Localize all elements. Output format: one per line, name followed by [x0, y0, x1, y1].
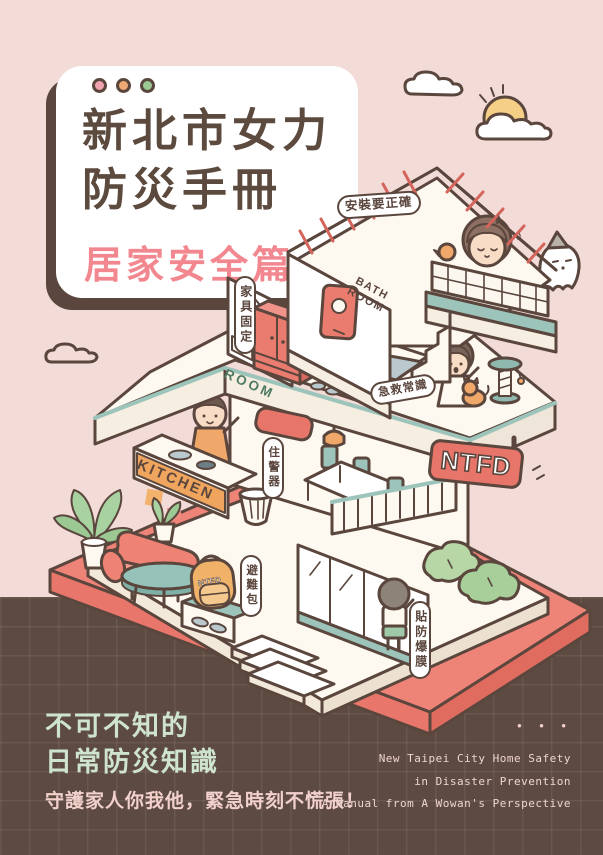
- poster: 新北市女力 防災手冊 居家安全篇: [0, 0, 603, 855]
- footer-english-line2: in Disaster Prevention: [322, 771, 571, 794]
- footer-english-line1: New Taipei City Home Safety: [322, 748, 571, 771]
- footer-headline-line2: 日常防災知識: [45, 744, 219, 780]
- label-go-bag: 避難包: [240, 555, 262, 617]
- footer-english-title: New Taipei City Home Safety in Disaster …: [322, 748, 571, 816]
- label-furniture-fixing: 家具固定: [234, 276, 256, 354]
- footer-headline: 不可不知的 日常防災知識: [45, 708, 219, 781]
- footer-dots: • • •: [517, 718, 573, 733]
- label-blast-film: 貼防爆膜: [409, 601, 431, 679]
- small-cloud-icon: [46, 344, 97, 362]
- footer-english-line3: A Manual from A Wowan's Perspective: [322, 793, 571, 816]
- cloud-icon: [405, 72, 462, 95]
- music-note-icon: ♪: [494, 209, 503, 228]
- footer-headline-line1: 不可不知的: [45, 708, 219, 744]
- footer-tagline: 守護家人你我他，緊急時刻不慌張！: [45, 786, 365, 813]
- ntfd-sign-text: NTFD: [439, 446, 512, 482]
- label-smoke-alarm: 住警器: [262, 437, 284, 499]
- music-note-icon: ♪: [516, 228, 523, 243]
